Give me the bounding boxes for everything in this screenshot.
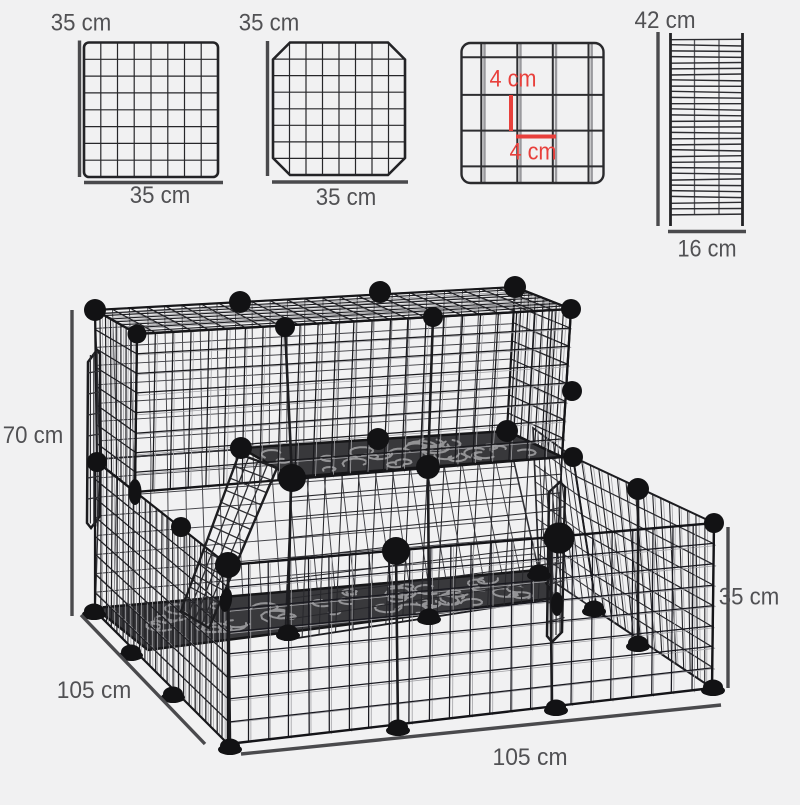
svg-text:35 cm: 35 cm [130, 182, 191, 209]
svg-text:105 cm: 105 cm [57, 677, 132, 704]
svg-text:70 cm: 70 cm [3, 422, 64, 449]
svg-text:35 cm: 35 cm [719, 584, 780, 611]
svg-text:35 cm: 35 cm [51, 10, 112, 37]
svg-text:35 cm: 35 cm [239, 10, 300, 37]
svg-text:105 cm: 105 cm [493, 744, 568, 771]
svg-text:42 cm: 42 cm [635, 7, 696, 34]
svg-text:4 cm: 4 cm [490, 66, 537, 93]
svg-text:4 cm: 4 cm [510, 139, 557, 166]
svg-text:16 cm: 16 cm [678, 236, 737, 263]
svg-text:35 cm: 35 cm [316, 184, 377, 211]
